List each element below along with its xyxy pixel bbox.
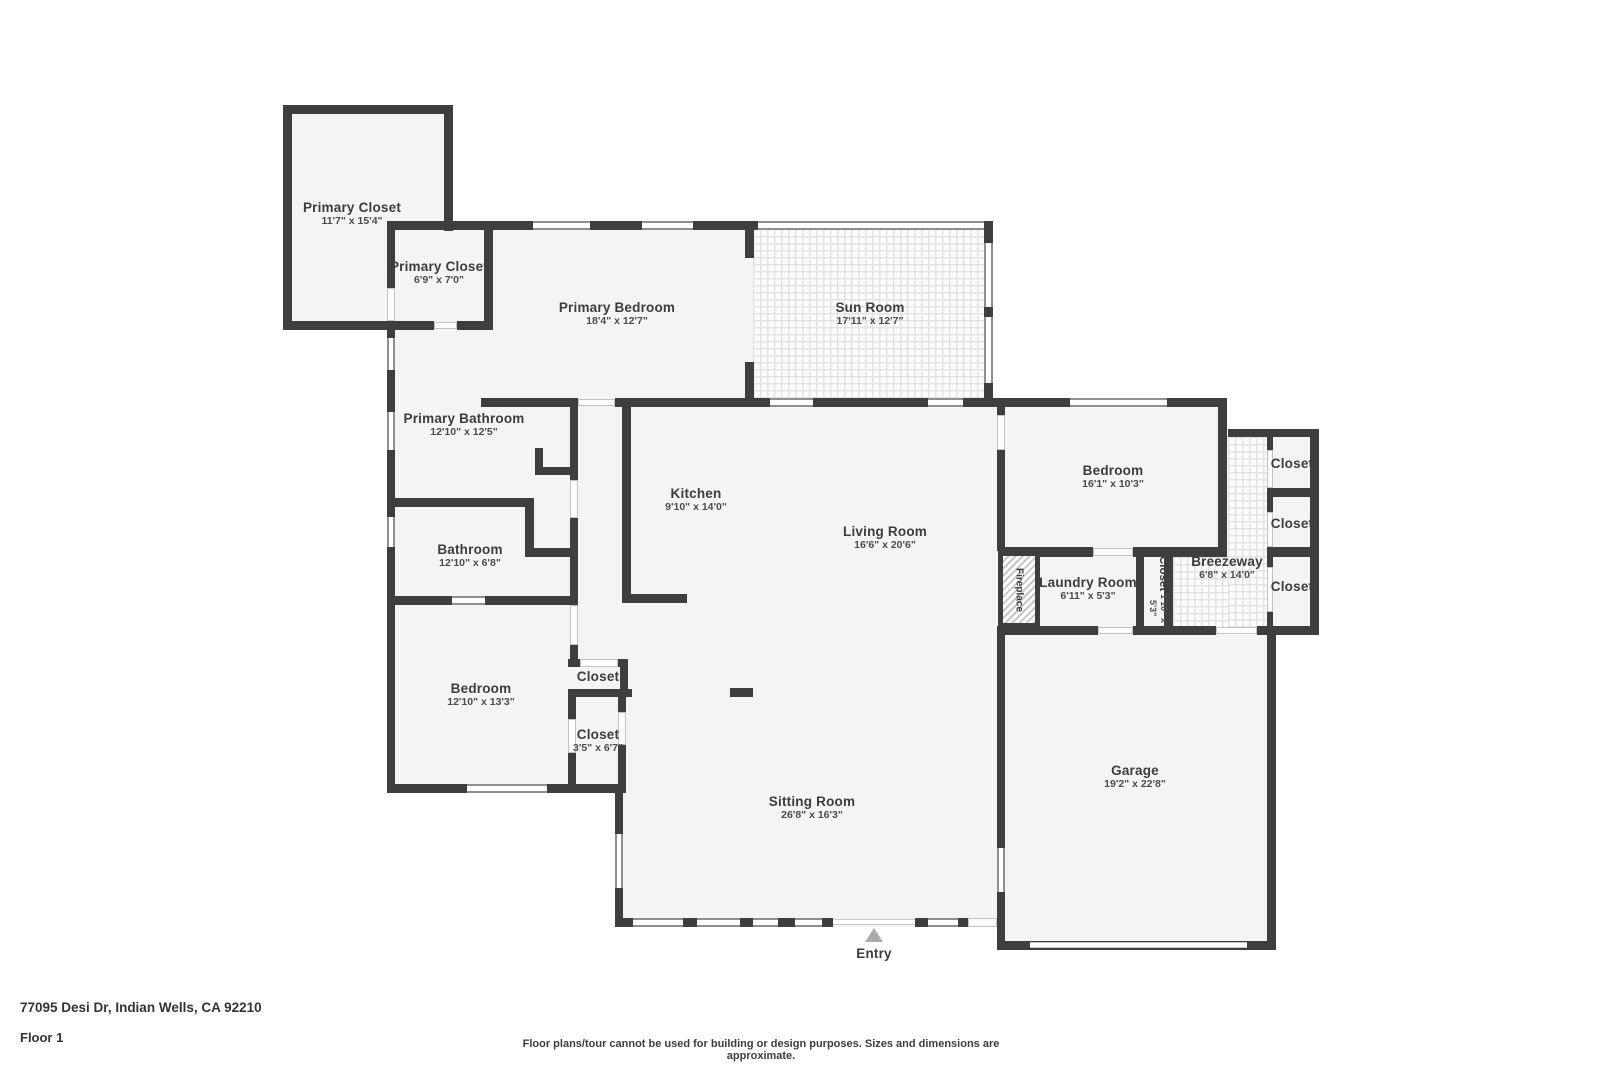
tile-floor	[1228, 437, 1267, 627]
window	[387, 412, 395, 450]
room-label-primary-closet-small: Primary Closet 6'9" x 7'0"	[390, 259, 488, 287]
floor-plan-page: Primary Closet 11'7" x 15'4" Primary Clo…	[0, 0, 1600, 1067]
room-label-bedroom-right: Bedroom 16'1" x 10'3"	[1082, 463, 1144, 491]
wall	[1133, 626, 1216, 635]
room-label-living-room: Living Room 16'6" x 20'6"	[843, 524, 927, 552]
wall	[387, 498, 525, 507]
door-opening	[1098, 627, 1133, 634]
room-label-sun-room: Sun Room 17'11" x 12'7"	[835, 300, 904, 328]
door-opening	[578, 399, 615, 406]
entry-arrow-icon	[865, 928, 883, 942]
wall	[1228, 429, 1319, 437]
wall	[283, 321, 434, 330]
entry-threshold	[1030, 942, 1247, 948]
door-opening	[580, 659, 618, 667]
wall	[1267, 612, 1273, 626]
window	[452, 596, 485, 605]
window	[758, 221, 984, 230]
wall	[387, 330, 395, 793]
room-label-primary-bedroom: Primary Bedroom 18'4" x 12'7"	[559, 300, 675, 328]
wall	[958, 918, 968, 927]
window	[753, 918, 778, 927]
floor-area	[997, 635, 1275, 950]
wall	[813, 398, 928, 407]
wall	[615, 793, 623, 834]
window	[387, 338, 395, 370]
wall	[525, 498, 534, 557]
room-label-primary-closet-large: Primary Closet 11'7" x 15'4"	[303, 200, 401, 228]
wall	[444, 105, 453, 231]
wall	[984, 383, 993, 407]
door-opening	[968, 918, 997, 927]
room-label-garage: Garage 19'2" x 22'8"	[1104, 763, 1166, 791]
wall	[822, 918, 833, 927]
window	[697, 918, 740, 927]
entry-label: Entry	[856, 946, 892, 961]
wall	[1218, 398, 1227, 557]
window	[533, 221, 590, 230]
window	[615, 834, 623, 888]
room-label-bedroom-left: Bedroom 12'10" x 13'3"	[447, 681, 515, 709]
room-label-laundry-room: Laundry Room 6'11" x 5'3"	[1039, 575, 1137, 603]
address-text: 77095 Desi Dr, Indian Wells, CA 92210	[20, 1000, 262, 1015]
room-label-kitchen: Kitchen 9'10" x 14'0"	[665, 486, 727, 514]
wall	[997, 407, 1005, 415]
wall	[568, 697, 576, 719]
floor-number-label: Floor 1	[20, 1030, 63, 1045]
room-label-breezeway: Breezeway 6'8" x 14'0"	[1191, 554, 1263, 582]
wall	[745, 227, 754, 258]
wall	[915, 918, 928, 927]
window	[387, 517, 395, 547]
fireplace-label: Fireplace	[1013, 568, 1026, 612]
door-opening	[570, 605, 578, 645]
wall	[730, 688, 753, 697]
entry-threshold	[833, 919, 915, 925]
window	[770, 398, 813, 407]
door-opening	[997, 415, 1005, 450]
door-opening	[1093, 548, 1133, 556]
door-opening	[1216, 627, 1257, 634]
wall	[570, 518, 578, 605]
window	[1070, 398, 1167, 407]
window	[928, 918, 958, 927]
window	[795, 918, 822, 927]
door-opening	[434, 322, 457, 329]
window	[984, 317, 993, 383]
window	[984, 243, 993, 307]
wall	[457, 321, 492, 330]
door-opening	[387, 288, 395, 321]
wall	[570, 407, 578, 480]
disclaimer-text: Floor plans/tour cannot be used for buil…	[521, 1038, 1001, 1062]
wall	[622, 407, 631, 603]
wall	[1267, 437, 1273, 450]
wall	[778, 918, 795, 927]
room-label-primary-bathroom: Primary Bathroom 12'10" x 12'5"	[404, 411, 525, 439]
wall	[1272, 547, 1319, 557]
room-label-closet-right-1: Closet	[1271, 456, 1313, 471]
wall	[485, 596, 577, 605]
window	[928, 398, 963, 407]
wall	[387, 596, 452, 605]
room-label-closet-hall: Closet	[577, 669, 619, 684]
wall	[997, 635, 1005, 848]
room-label-closet-laundry: Closet 1'10" x 5'3"	[1139, 556, 1169, 626]
wall	[283, 105, 292, 330]
floor-plan: Primary Closet 11'7" x 15'4" Primary Clo…	[0, 0, 1600, 1067]
room-label-closet-bedroom: Closet 3'5" x 6'7"	[573, 727, 623, 755]
wall	[618, 697, 626, 712]
window	[467, 784, 547, 793]
wall	[568, 753, 576, 793]
fireplace: Fireplace	[998, 551, 1040, 628]
wall	[283, 105, 452, 114]
wall	[1267, 547, 1273, 567]
wall	[1267, 632, 1276, 950]
room-label-closet-right-2: Closet	[1271, 516, 1313, 531]
wall	[1267, 488, 1273, 512]
door-opening	[570, 480, 578, 518]
wall	[547, 784, 626, 793]
wall	[570, 645, 578, 659]
window	[633, 918, 683, 927]
room-label-closet-right-3: Closet	[1271, 579, 1313, 594]
wall	[535, 448, 543, 475]
wall	[984, 307, 993, 317]
floor-area	[615, 407, 1005, 927]
wall	[745, 362, 754, 402]
room-label-bathroom: Bathroom 12'10" x 6'8"	[437, 542, 502, 570]
window	[997, 848, 1005, 892]
wall	[543, 467, 570, 475]
wall	[387, 784, 467, 793]
wall	[622, 594, 687, 603]
wall	[481, 398, 578, 407]
wall	[997, 892, 1005, 950]
wall	[740, 918, 753, 927]
wall	[683, 918, 697, 927]
wall	[997, 450, 1005, 551]
room-label-sitting-room: Sitting Room 26'8" x 16'3"	[769, 794, 855, 822]
wall	[615, 888, 623, 927]
wall	[1272, 488, 1319, 497]
window	[642, 221, 693, 230]
wall	[1257, 626, 1319, 635]
